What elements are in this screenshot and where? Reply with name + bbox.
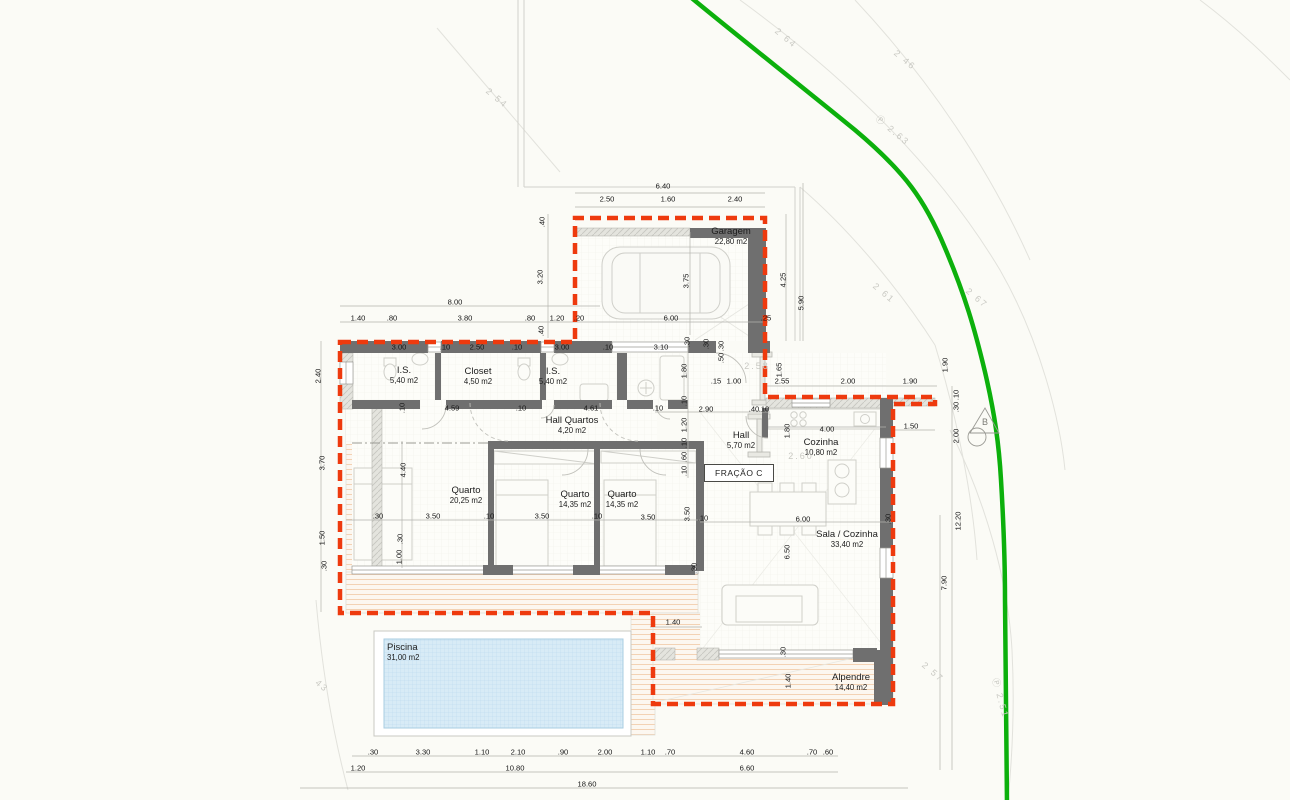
floor-plan-drawing [0, 0, 1290, 800]
pool [374, 631, 631, 736]
floor-plan-canvas: Garagem22,80 m2I.S.5,40 m2Closet4,50 m2I… [0, 0, 1290, 800]
car-icon [602, 247, 730, 319]
